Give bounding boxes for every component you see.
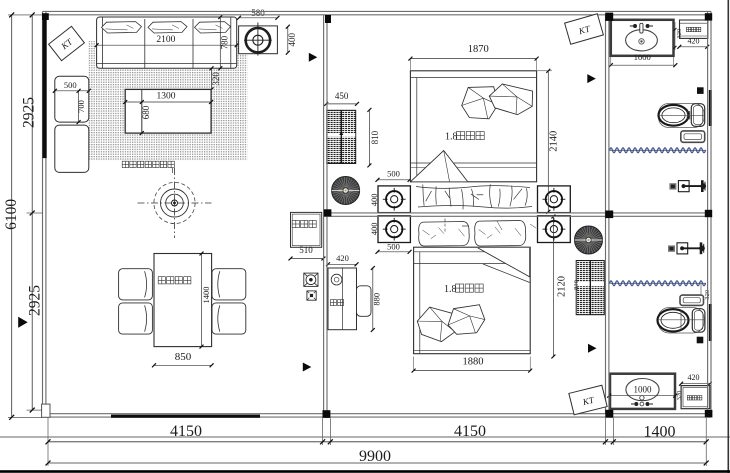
svg-text:320: 320 [211,72,221,86]
svg-text:320: 320 [676,29,683,39]
svg-text:1000: 1000 [634,385,653,395]
svg-text:1870: 1870 [468,44,489,55]
svg-text:780: 780 [220,35,230,49]
svg-text:1400: 1400 [644,424,676,441]
svg-text:2100: 2100 [156,35,175,45]
svg-text:2925: 2925 [27,285,44,316]
svg-text:810: 810 [573,280,580,290]
svg-text:500: 500 [387,241,400,251]
svg-text:2140: 2140 [548,131,559,152]
svg-text:1300: 1300 [157,91,176,101]
svg-text:810: 810 [370,130,380,144]
svg-text:420: 420 [688,373,700,382]
svg-text:320: 320 [676,391,683,401]
svg-text:2925: 2925 [21,97,38,128]
svg-text:400: 400 [287,32,297,46]
svg-text:6100: 6100 [3,199,20,230]
svg-text:510: 510 [299,245,313,255]
svg-text:880: 880 [372,293,382,306]
svg-text:450: 450 [335,91,349,101]
svg-text:420: 420 [688,36,700,45]
svg-text:9900: 9900 [359,448,391,465]
svg-text:2120: 2120 [556,276,567,297]
svg-text:400: 400 [369,222,379,235]
svg-text:500: 500 [387,168,400,178]
svg-text:400: 400 [369,193,379,206]
svg-text:580: 580 [251,8,265,18]
svg-text:850: 850 [175,351,192,363]
svg-text:420: 420 [336,253,349,263]
svg-text:500: 500 [64,80,77,90]
svg-text:1000: 1000 [634,52,651,62]
svg-text:700: 700 [76,100,86,113]
svg-text:1400: 1400 [201,287,211,304]
svg-text:680: 680 [141,105,151,119]
svg-text:1.8: 1.8 [444,284,457,295]
svg-text:1880: 1880 [463,356,484,367]
svg-text:1.8: 1.8 [445,131,458,142]
